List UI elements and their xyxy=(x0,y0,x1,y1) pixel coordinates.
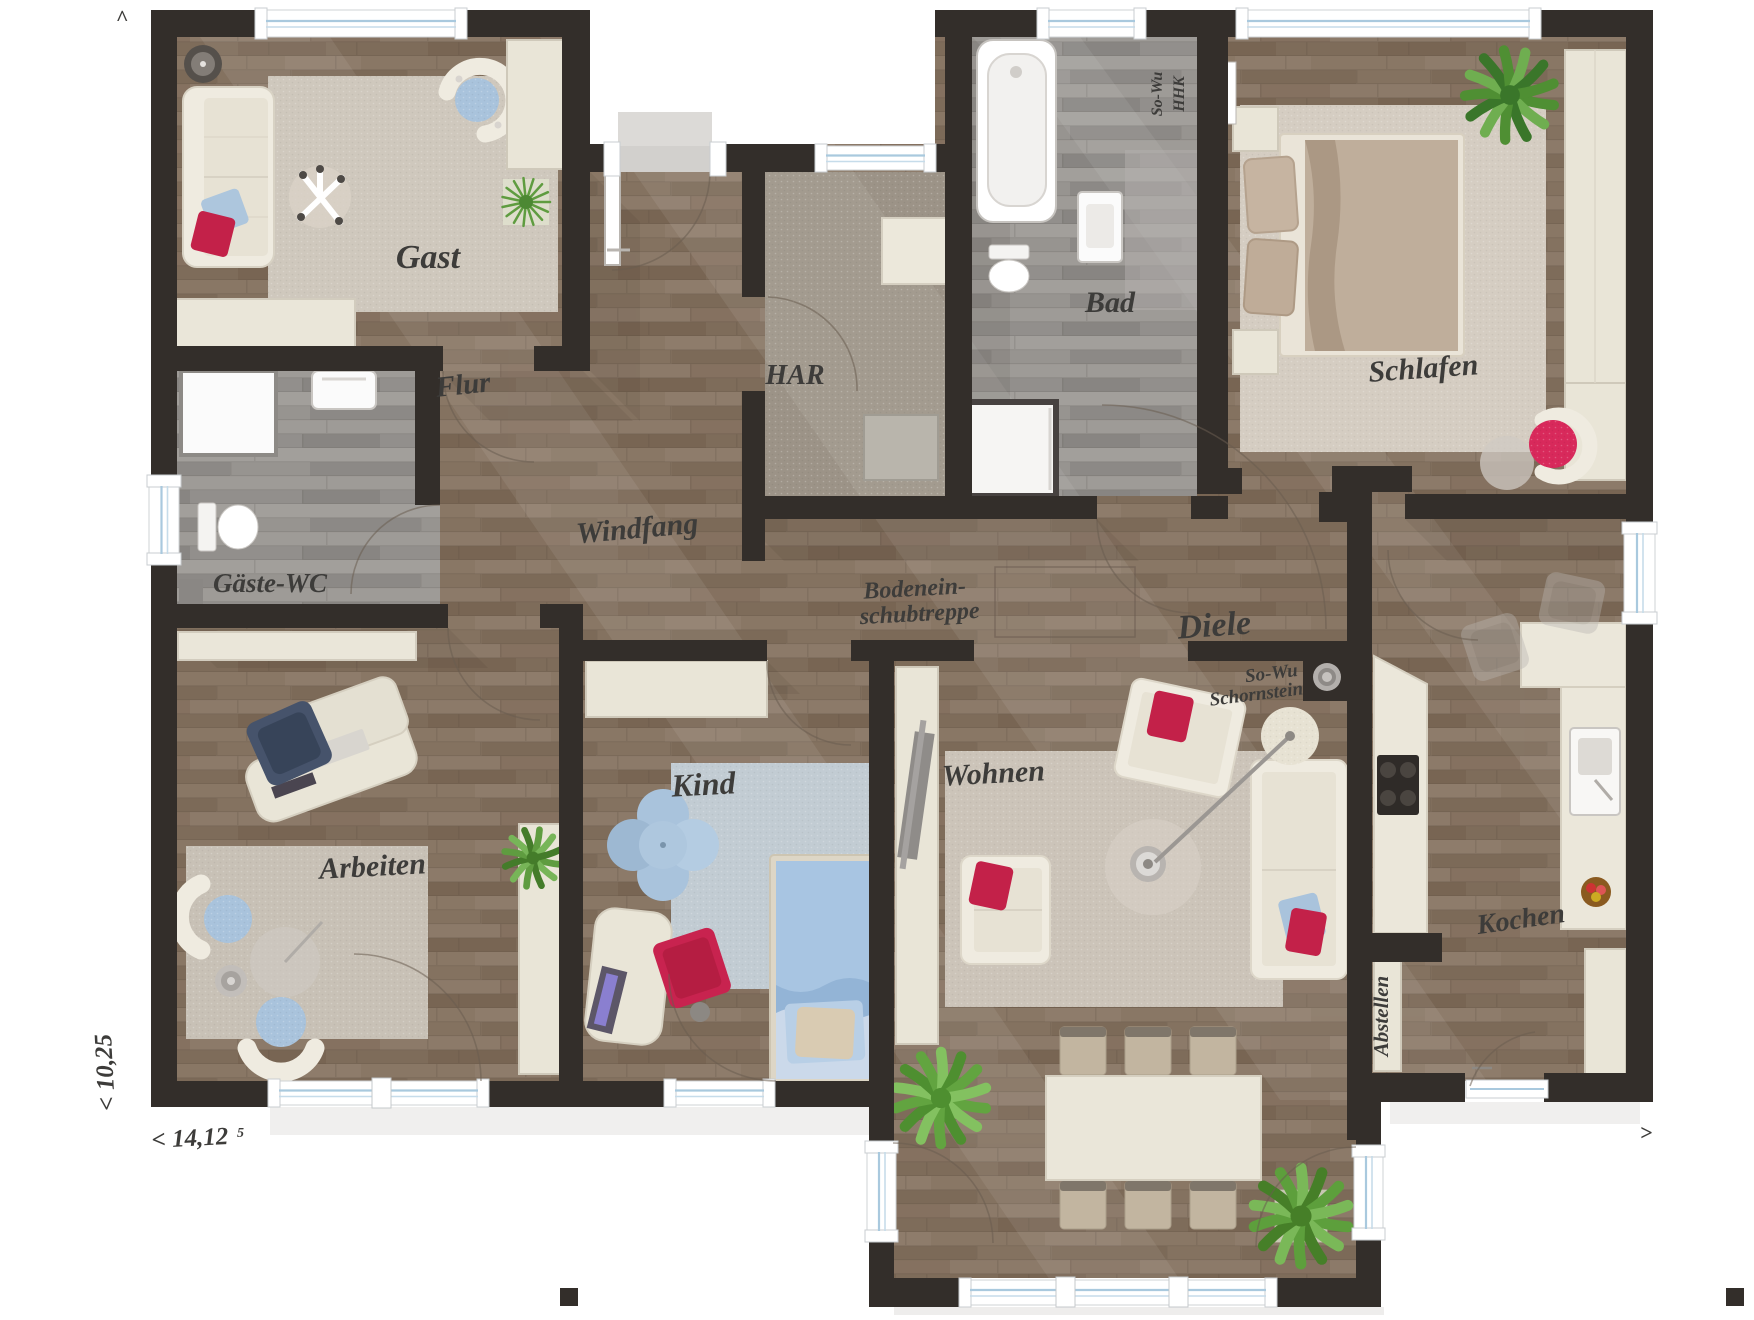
svg-text:HAR: HAR xyxy=(764,360,824,391)
svg-text:Arbeiten: Arbeiten xyxy=(316,847,426,886)
svg-text:< 14,12: < 14,12 xyxy=(151,1123,229,1154)
svg-text:Gast: Gast xyxy=(396,239,462,276)
svg-text:Gäste-WC: Gäste-WC xyxy=(213,568,328,598)
svg-text:Flur: Flur xyxy=(433,366,493,404)
svg-text:< 10,25: < 10,25 xyxy=(90,1033,121,1111)
svg-text:HHK: HHK xyxy=(1171,75,1188,113)
svg-text:5: 5 xyxy=(237,1126,244,1141)
svg-text:^: ^ xyxy=(116,5,129,30)
svg-text:Abstellen: Abstellen xyxy=(1369,976,1393,1059)
svg-text:So-Wu: So-Wu xyxy=(1149,72,1166,117)
svg-text:>: > xyxy=(1640,1120,1653,1145)
svg-text:Bad: Bad xyxy=(1084,286,1136,319)
svg-text:Wohnen: Wohnen xyxy=(941,754,1045,792)
svg-text:Kind: Kind xyxy=(670,764,738,803)
svg-text:Diele: Diele xyxy=(1175,605,1252,647)
